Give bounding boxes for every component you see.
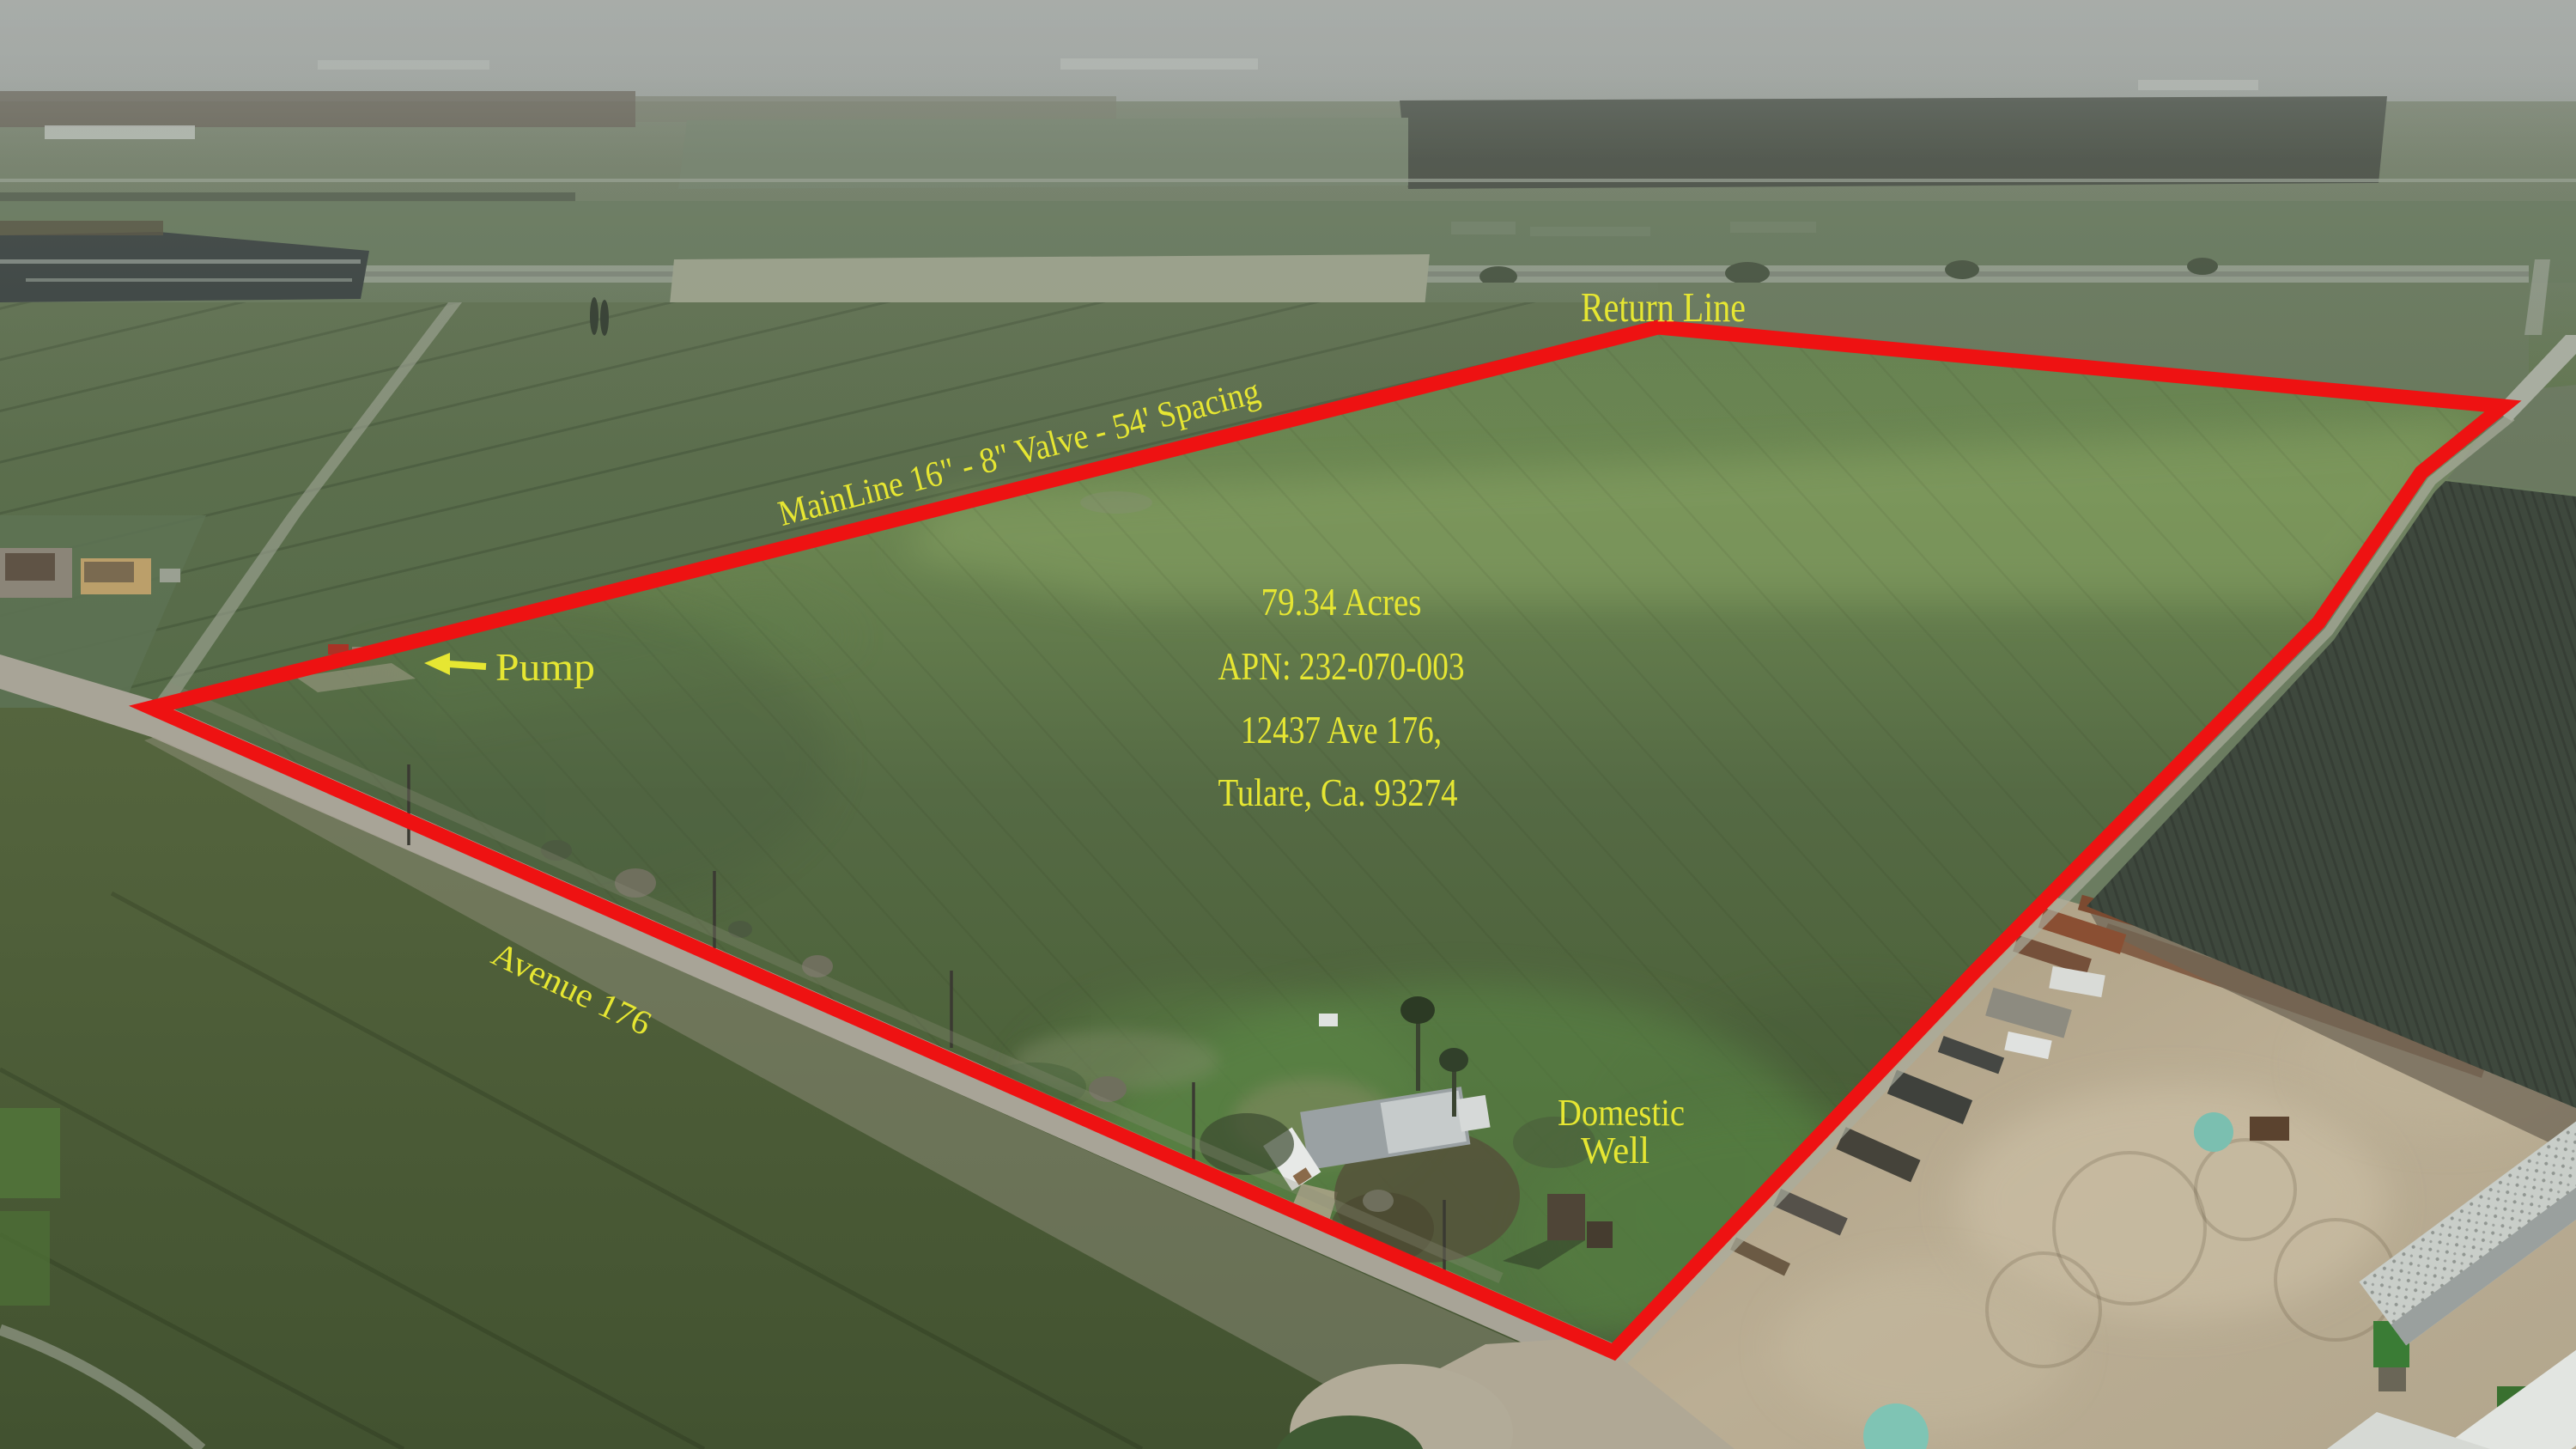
svg-text:Pump: Pump [495,645,595,689]
svg-text:12437 Ave 176,: 12437 Ave 176, [1241,708,1442,752]
svg-text:Tulare, Ca. 93274: Tulare, Ca. 93274 [1218,770,1458,814]
svg-text:79.34 Acres: 79.34 Acres [1261,580,1422,624]
svg-text:APN: 232-070-003: APN: 232-070-003 [1218,644,1465,688]
svg-text:Well: Well [1581,1129,1649,1172]
svg-text:Domestic: Domestic [1558,1092,1685,1134]
svg-text:Return Line: Return Line [1581,283,1746,331]
